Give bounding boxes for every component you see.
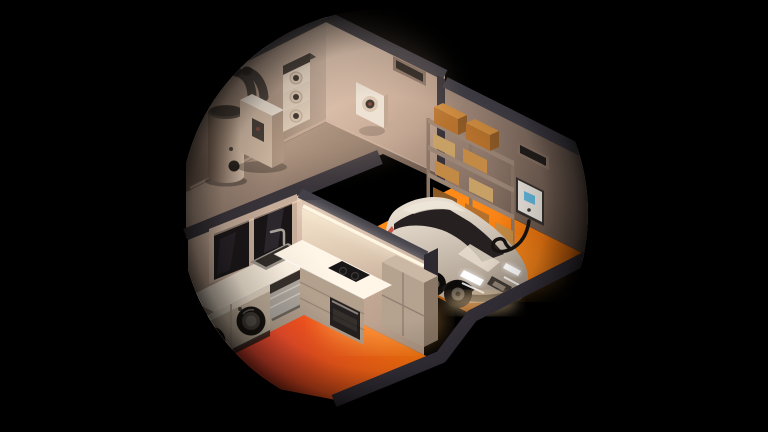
scene-canvas: Isometric cutaway illustration of a smar… xyxy=(0,0,768,432)
isometric-home-energy-illustration: Isometric cutaway illustration of a smar… xyxy=(0,0,768,432)
vignette-overlay xyxy=(180,9,588,417)
